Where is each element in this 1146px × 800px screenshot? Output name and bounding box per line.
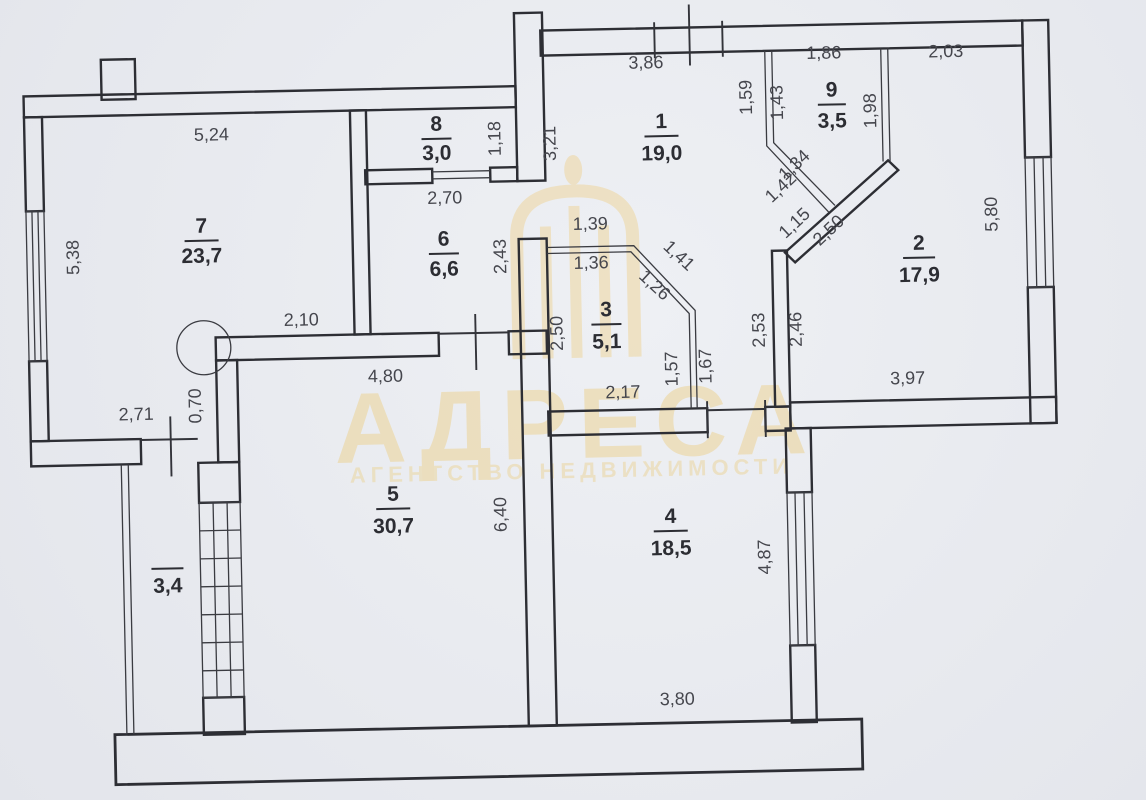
room-2-area: 17,9 bbox=[899, 263, 940, 287]
room-5-area: 30,7 bbox=[373, 514, 414, 538]
dim-0-70: 0,70 bbox=[185, 388, 206, 423]
agency-watermark: АДРЕСА АГЕНТСТВО НЕДВИЖИМОСТИ bbox=[329, 150, 818, 488]
tick-room5-door bbox=[475, 314, 476, 370]
wall-right-lower bbox=[1028, 287, 1057, 424]
dim-1-18: 1,18 bbox=[484, 121, 505, 156]
wall-room5-top-west bbox=[216, 333, 439, 361]
dim-3-86: 3,86 bbox=[628, 52, 663, 73]
wall-step-bottom-left bbox=[31, 439, 141, 466]
dim-1-67: 1,67 bbox=[695, 348, 716, 383]
room-label-7: 7 23,7 bbox=[181, 214, 223, 268]
dim-2-70: 2,70 bbox=[427, 187, 462, 208]
room-5-number: 5 bbox=[387, 483, 399, 506]
wall-bottom-band bbox=[115, 719, 863, 785]
dim-3-80: 3,80 bbox=[660, 689, 695, 710]
dim-2-46: 2,46 bbox=[785, 312, 806, 347]
room-4-area: 18,5 bbox=[650, 537, 692, 561]
partition-room9-right bbox=[881, 48, 890, 161]
column-circle-symbol bbox=[176, 320, 231, 375]
room-label-1: 1 19,0 bbox=[641, 110, 683, 166]
room-7-number: 7 bbox=[195, 215, 207, 238]
door-room8-room6 bbox=[432, 171, 490, 179]
dim-1-36: 1,36 bbox=[573, 252, 608, 273]
room-label-4: 4 18,5 bbox=[650, 505, 692, 561]
dim-6-40: 6,40 bbox=[490, 497, 511, 532]
dim-3-21: 3,21 bbox=[539, 126, 560, 161]
wall-room2-bottom bbox=[790, 397, 1056, 429]
window-room4-right bbox=[787, 492, 815, 645]
room-6-area: 6,6 bbox=[429, 257, 459, 281]
dim-4-80: 4,80 bbox=[368, 366, 403, 387]
dim-1-86: 1,86 bbox=[806, 42, 841, 63]
room-9-number: 9 bbox=[825, 78, 837, 101]
room-2-number: 2 bbox=[913, 232, 925, 255]
wall-room7-room8 bbox=[350, 110, 371, 334]
room-label-balcony: 3,4 bbox=[151, 568, 184, 598]
balcony-area: 3,4 bbox=[153, 574, 183, 598]
dim-2-17: 2,17 bbox=[605, 382, 640, 403]
room-1-area: 19,0 bbox=[641, 142, 682, 166]
opening-balcony-door bbox=[141, 439, 198, 440]
ticks-top-window bbox=[654, 4, 723, 66]
dim-1-26: 1,26 bbox=[635, 266, 674, 304]
dim-1-43: 1,43 bbox=[766, 85, 787, 120]
dim-2-50-hall: 2,50 bbox=[546, 316, 567, 351]
dim-5-38: 5,38 bbox=[63, 240, 84, 275]
dim-1-15: 1,15 bbox=[775, 204, 814, 243]
wall-room5-west bbox=[216, 360, 239, 462]
tick-balcony-door bbox=[170, 416, 171, 476]
dim-2-71: 2,71 bbox=[118, 404, 153, 425]
floor-plan-drawing: АДРЕСА АГЕНТСТВО НЕДВИЖИМОСТИ bbox=[0, 0, 1146, 800]
logo-flame-icon bbox=[564, 155, 583, 185]
room-6-number: 6 bbox=[438, 228, 450, 251]
wall-left-upper bbox=[24, 117, 44, 211]
room-7-area: 23,7 bbox=[181, 244, 222, 268]
dim-4-87: 4,87 bbox=[754, 539, 775, 574]
room-label-5: 5 30,7 bbox=[372, 482, 414, 538]
wall-left-lower bbox=[29, 361, 49, 441]
wall-room8-room6-west bbox=[365, 169, 432, 184]
room-label-2: 2 17,9 bbox=[898, 231, 940, 287]
window-left-wall bbox=[26, 211, 47, 361]
dim-1-98: 1,98 bbox=[860, 93, 881, 128]
dim-5-24: 5,24 bbox=[194, 124, 229, 145]
opening-room4-door bbox=[707, 409, 765, 410]
dim-2-10: 2,10 bbox=[284, 309, 319, 330]
room-8-number: 8 bbox=[430, 113, 442, 136]
wall-balcony-pier-lower bbox=[203, 697, 245, 735]
dim-3-97: 3,97 bbox=[890, 368, 925, 389]
dim-1-41: 1,41 bbox=[660, 236, 699, 274]
dim-1-39: 1,39 bbox=[573, 213, 608, 234]
room-1-number: 1 bbox=[655, 110, 667, 133]
dim-2-03: 2,03 bbox=[928, 41, 963, 62]
floor-plan-page: АДРЕСА АГЕНТСТВО НЕДВИЖИМОСТИ bbox=[0, 0, 1146, 800]
opening-room5-door bbox=[439, 332, 509, 333]
room-8-area: 3,0 bbox=[422, 141, 452, 165]
wall-top-rooms7-8 bbox=[24, 86, 516, 117]
room-3-number: 3 bbox=[600, 298, 612, 321]
dim-2-53: 2,53 bbox=[748, 312, 769, 347]
dim-5-80: 5,80 bbox=[981, 196, 1002, 231]
wall-room8-room6-east bbox=[490, 167, 517, 182]
partition-balcony-left bbox=[121, 464, 134, 734]
room-label-8: 8 3,0 bbox=[421, 112, 452, 165]
dim-1-59: 1,59 bbox=[735, 80, 756, 115]
room-label-6: 6 6,6 bbox=[428, 227, 459, 281]
room-label-9: 9 3,5 bbox=[817, 78, 848, 133]
room-4-number: 4 bbox=[664, 505, 676, 528]
room-9-area: 3,5 bbox=[817, 109, 847, 133]
dim-2-43: 2,43 bbox=[490, 239, 511, 274]
wall-right-upper bbox=[1022, 20, 1051, 158]
dim-1-57: 1,57 bbox=[661, 351, 682, 386]
wall-room4-right-lower bbox=[790, 645, 817, 723]
window-right-wall bbox=[1025, 157, 1054, 288]
balcony-glazing-ladder bbox=[199, 502, 244, 698]
room-3-area: 5,1 bbox=[592, 330, 622, 354]
wall-balcony-pier-upper bbox=[198, 462, 240, 503]
